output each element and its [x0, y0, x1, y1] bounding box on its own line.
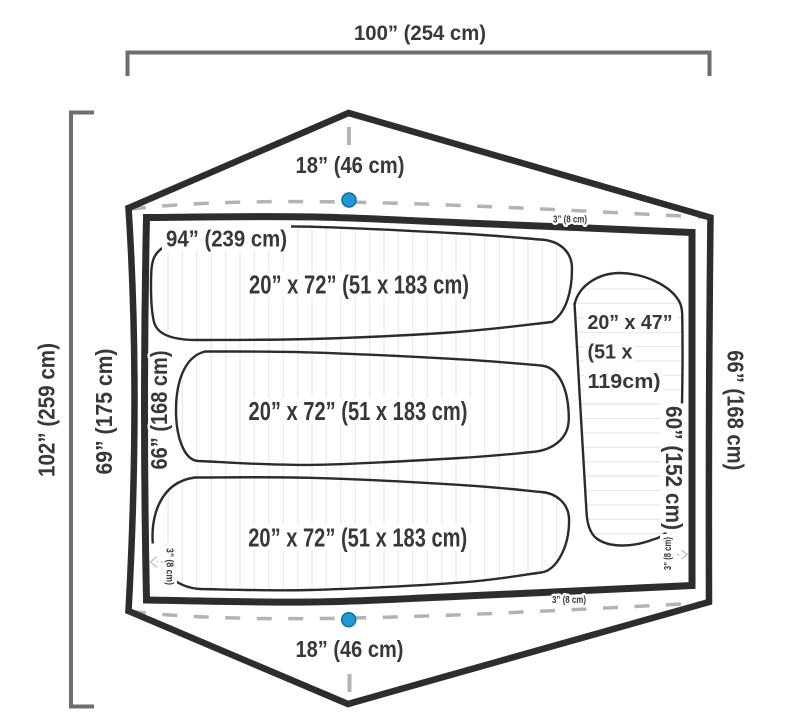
svg-text:119cm): 119cm) [588, 370, 661, 393]
svg-text:69” (175 cm): 69” (175 cm) [92, 349, 118, 475]
svg-text:18” (46 cm): 18” (46 cm) [296, 153, 405, 179]
svg-text:3” (8 cm): 3” (8 cm) [553, 214, 587, 225]
svg-text:20” x 72” (51 x 183 cm): 20” x 72” (51 x 183 cm) [249, 271, 469, 300]
svg-text:66” (168 cm): 66” (168 cm) [722, 350, 748, 470]
svg-text:20” x 47”: 20” x 47” [588, 310, 673, 333]
svg-text:(51 x: (51 x [588, 340, 634, 363]
svg-text:66” (168 cm): 66” (168 cm) [147, 351, 173, 470]
svg-text:20” x 72” (51 x 183 cm): 20” x 72” (51 x 183 cm) [249, 397, 468, 426]
svg-text:102” (259 cm): 102” (259 cm) [34, 343, 60, 477]
svg-text:60” (152 cm): 60” (152 cm) [661, 406, 687, 530]
svg-text:3” (8 cm): 3” (8 cm) [662, 537, 673, 570]
svg-text:3” (8 cm): 3” (8 cm) [552, 594, 586, 605]
svg-text:94” (239 cm): 94” (239 cm) [166, 226, 287, 252]
svg-text:100” (254 cm): 100” (254 cm) [354, 22, 486, 46]
svg-text:18” (46 cm): 18” (46 cm) [296, 637, 404, 663]
svg-text:3” (8 cm): 3” (8 cm) [165, 548, 176, 585]
svg-text:20” x 72” (51 x 183 cm): 20” x 72” (51 x 183 cm) [248, 524, 467, 553]
